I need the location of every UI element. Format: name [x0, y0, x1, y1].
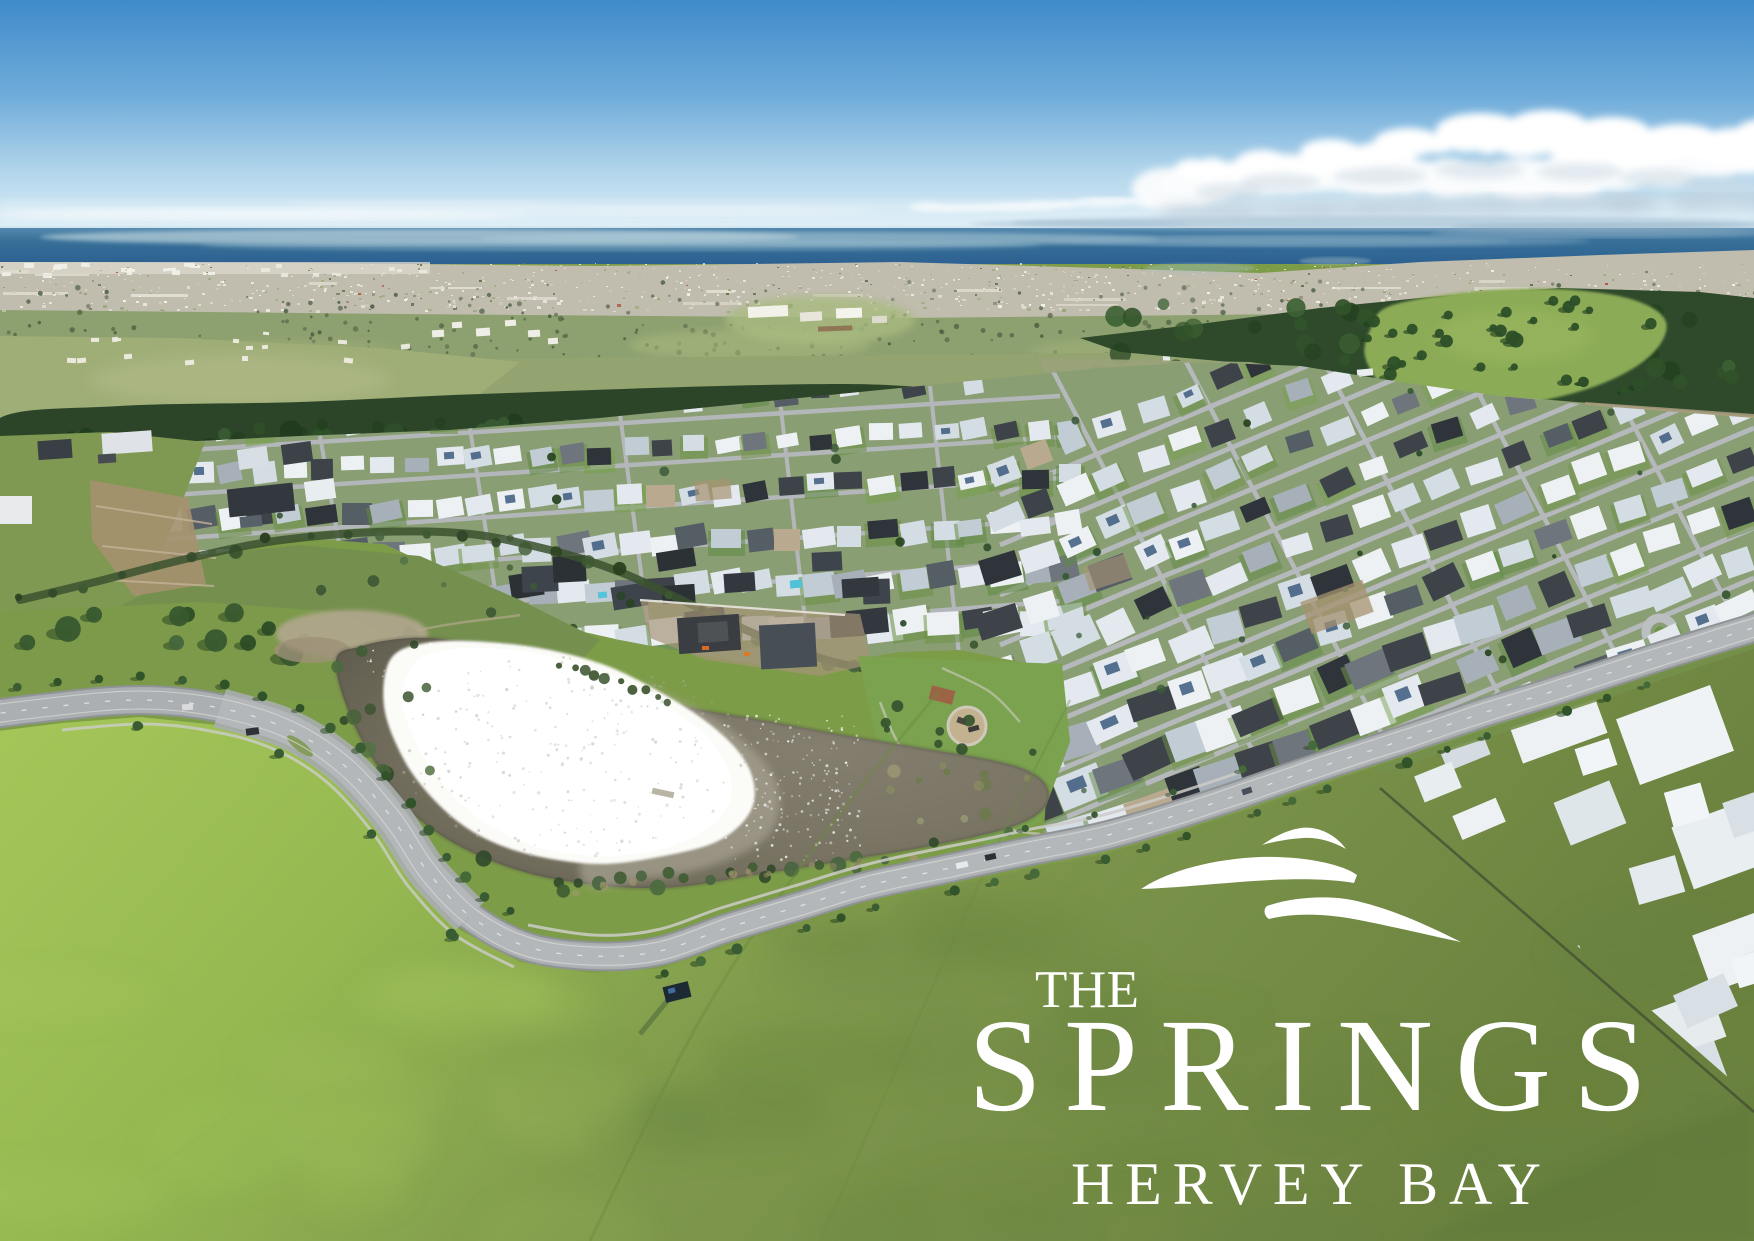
svg-text:HERVEY BAY: HERVEY BAY [1071, 1151, 1541, 1217]
svg-text:SPRINGS: SPRINGS [968, 991, 1647, 1139]
